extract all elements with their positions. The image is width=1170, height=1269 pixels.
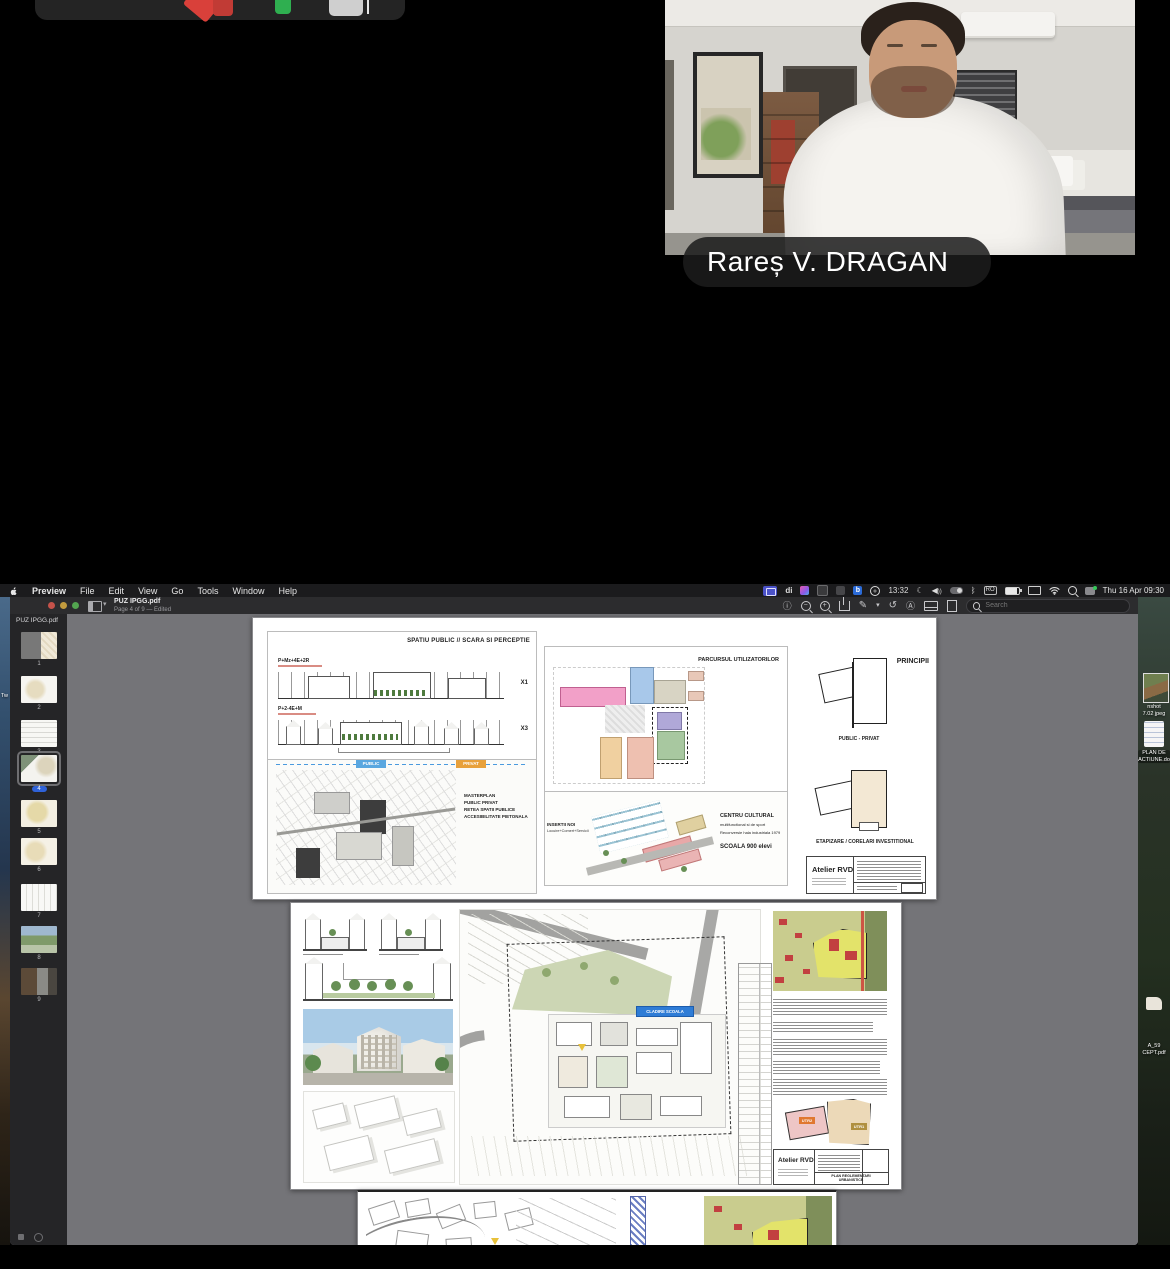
profile-caption bbox=[303, 952, 343, 955]
utr2-chip: UTR2 bbox=[799, 1117, 815, 1124]
axo-box bbox=[384, 1138, 440, 1174]
plaza-hatch bbox=[605, 705, 645, 733]
elev2-dim bbox=[338, 748, 450, 753]
render-windows bbox=[361, 1035, 397, 1069]
page-number-9: 9 bbox=[21, 997, 57, 1003]
panel-scara-title: SPATIU PUBLIC // SCARA SI PERCEPTIE bbox=[407, 638, 530, 644]
profile-house bbox=[433, 963, 451, 1001]
app-colorful-icon[interactable] bbox=[800, 586, 809, 595]
menu-status-area: di b 13:32 ☾ ◀)) ᛒ RO bbox=[763, 585, 1170, 596]
mp-blue-axis bbox=[276, 764, 528, 765]
plan-building bbox=[558, 1056, 588, 1088]
sheet3-blue-hatch bbox=[630, 1196, 646, 1245]
desktop-wallpaper-left: Tw bbox=[0, 597, 10, 1245]
signature-icon[interactable] bbox=[924, 601, 938, 611]
toggle-pill-icon[interactable] bbox=[950, 587, 963, 594]
mp-building bbox=[336, 832, 382, 860]
plan-building bbox=[596, 1056, 628, 1088]
panel-scara: SPATIU PUBLIC // SCARA SI PERCEPTIE P+Mz… bbox=[267, 631, 537, 761]
desktop-doc-label[interactable]: PLAN DEACTIUNE.do bbox=[1138, 750, 1170, 763]
page-number-5: 5 bbox=[21, 829, 57, 835]
page-number-4: 4 bbox=[21, 786, 57, 792]
mp-building bbox=[392, 826, 414, 866]
block-purple bbox=[657, 712, 682, 730]
markup-pencil-icon[interactable]: ✎ bbox=[859, 600, 867, 612]
principii-diagram-1 bbox=[819, 656, 893, 732]
elev2-sub bbox=[278, 713, 316, 715]
block-tan bbox=[654, 680, 686, 704]
titleblock-sheet1: Atelier RVD bbox=[806, 856, 926, 894]
plan-building bbox=[600, 1022, 628, 1046]
zoning-map bbox=[773, 911, 887, 991]
page-thumbnail-8[interactable] bbox=[21, 926, 57, 953]
sheet3-cadastru bbox=[366, 1198, 616, 1245]
mp-building bbox=[314, 792, 350, 814]
bluetooth-icon[interactable]: ᛒ bbox=[971, 586, 976, 595]
profil-stradal-2 bbox=[379, 911, 443, 953]
page-thumbnail-3[interactable] bbox=[21, 720, 57, 747]
person-head bbox=[861, 2, 965, 122]
etapizare-caption: ETAPIZARE / CORELARI INVESTITIONAL bbox=[799, 839, 931, 845]
panel-parcursul: PARCURSUL UTILIZATORILOR bbox=[544, 646, 788, 793]
block-peach bbox=[627, 737, 654, 779]
share-screen-icon[interactable] bbox=[329, 0, 363, 16]
render-tree bbox=[305, 1055, 321, 1071]
titleblock-sheet2: Atelier RVD PLAN REGLEMENTARI URBANISTIC… bbox=[773, 1149, 889, 1185]
menu-view[interactable]: View bbox=[138, 586, 157, 596]
diagram-tag bbox=[859, 822, 879, 831]
thumbnail-sidebar[interactable]: PUZ IPGG.pdf 1 2 3 4 5 6 7 8 9 bbox=[10, 614, 67, 1245]
profile-house bbox=[381, 919, 397, 951]
elev1-trees bbox=[374, 690, 428, 696]
page-thumbnail-6[interactable] bbox=[21, 838, 57, 865]
spotlight-search-icon[interactable] bbox=[1068, 586, 1077, 595]
app-disabled-icon[interactable] bbox=[836, 586, 845, 595]
elev1-sub bbox=[278, 665, 322, 667]
sidebar-toggle-chevron-icon[interactable]: ▾ bbox=[103, 600, 107, 608]
axo-image bbox=[585, 800, 715, 878]
masterplan-drawing bbox=[276, 770, 456, 885]
elev2-trees bbox=[342, 734, 398, 740]
plan-school-chip: CLADIRE SCOALA bbox=[636, 1006, 694, 1017]
diagram-body bbox=[853, 658, 887, 724]
shared-screen: Preview File Edit View Go Tools Window H… bbox=[0, 584, 1170, 1269]
elev2-house bbox=[444, 728, 459, 745]
render-tree bbox=[435, 1057, 449, 1071]
zoom-out-icon[interactable]: − bbox=[801, 601, 811, 611]
panel-masterplan: PUBLIC PRIVAT MASTERPLAN PUBLIC PRIVAT R… bbox=[267, 759, 537, 894]
menu-clock[interactable]: Thu 16 Apr 09:30 bbox=[1103, 586, 1164, 595]
meeting-control-bar bbox=[35, 0, 405, 20]
elev1-label: P+Mz+4E+2R bbox=[278, 658, 309, 664]
pdf-scroll-area[interactable]: SPATIU PUBLIC // SCARA SI PERCEPTIE P+Mz… bbox=[67, 614, 1138, 1245]
sheet3-parcels bbox=[516, 1198, 616, 1245]
mp-building-dark bbox=[296, 848, 320, 878]
page-box-icon[interactable] bbox=[947, 600, 957, 612]
search-input[interactable] bbox=[983, 601, 1123, 610]
profile-caption bbox=[379, 952, 419, 955]
mp-caption-3: RETEA SPATII PUBLICE bbox=[464, 806, 528, 813]
video-on-icon[interactable] bbox=[275, 0, 291, 14]
menu-tools[interactable]: Tools bbox=[197, 586, 218, 596]
atelier-logo: Atelier RVD bbox=[812, 865, 853, 874]
utr-diagram: UTR2 UTR1 bbox=[787, 1099, 883, 1145]
window-titlebar: ▾ PUZ IPGG.pdf Page 4 of 9 — Edited ⓘ − … bbox=[10, 597, 1138, 615]
minimize-window-button[interactable] bbox=[60, 602, 67, 609]
block-orange bbox=[600, 737, 622, 779]
principii-diagram-2 bbox=[813, 768, 897, 832]
centru-sub: Reconversie hala industriala 1979 bbox=[720, 830, 784, 836]
plan-building bbox=[564, 1096, 610, 1118]
diagram-divider bbox=[852, 662, 854, 728]
elev2-drawing bbox=[278, 720, 504, 745]
insertii-sub: Locuire+Comert+Servicii bbox=[547, 828, 591, 834]
plan-marker-yellow bbox=[578, 1044, 586, 1051]
block-blue bbox=[630, 667, 654, 704]
doorway-shadow bbox=[665, 60, 674, 210]
focus-moon-icon[interactable]: ☾ bbox=[916, 586, 923, 595]
page-thumbnail-5[interactable] bbox=[21, 800, 57, 827]
pdf-sheet-2: CLADIRE SCOALA bbox=[290, 902, 902, 1190]
page-thumbnail-4-selected[interactable] bbox=[21, 755, 57, 782]
page-thumbnail-1[interactable] bbox=[21, 632, 57, 659]
pdf-sheet-3 bbox=[357, 1190, 837, 1245]
plan-building bbox=[636, 1028, 678, 1046]
desktop-screenshot-icon[interactable] bbox=[1143, 673, 1169, 703]
window-title: PUZ IPGG.pdf bbox=[114, 598, 171, 606]
elev2-house bbox=[414, 726, 429, 745]
app-dark-icon[interactable] bbox=[817, 585, 828, 596]
menu-window[interactable]: Window bbox=[232, 586, 264, 596]
profile-house bbox=[349, 919, 365, 951]
sheet3-marker bbox=[491, 1238, 499, 1245]
desktop-wallpaper-right: nshot7.02 jpeg PLAN DEACTIUNE.do A_59CEP… bbox=[1138, 597, 1170, 1245]
annotate-a-icon[interactable]: Ⓐ bbox=[906, 600, 915, 612]
titleblock-text bbox=[857, 885, 897, 890]
plan-building bbox=[620, 1094, 652, 1120]
menu-app-name[interactable]: Preview bbox=[32, 586, 66, 596]
bilant-table bbox=[738, 963, 772, 1185]
share-screen-plus bbox=[367, 0, 369, 14]
profile-frame bbox=[343, 963, 394, 980]
sheet3-map bbox=[704, 1196, 832, 1245]
plan-lower-parcels bbox=[468, 1136, 748, 1176]
block-peach-small bbox=[688, 671, 704, 681]
axo-tree bbox=[603, 850, 609, 856]
wifi-icon[interactable] bbox=[1049, 586, 1060, 595]
profile-tree bbox=[405, 929, 412, 936]
pdf-sheet-1: SPATIU PUBLIC // SCARA SI PERCEPTIE P+Mz… bbox=[252, 617, 937, 900]
diagram-body-etapa bbox=[851, 770, 887, 828]
battery-icon[interactable] bbox=[1005, 587, 1020, 595]
profile-tree bbox=[329, 929, 336, 936]
titleblock-lines bbox=[812, 877, 846, 885]
profil-stradal-wide bbox=[303, 959, 453, 1005]
profile-ground bbox=[303, 949, 367, 951]
desktop-doc-icon[interactable] bbox=[1144, 721, 1164, 747]
markup-chevron-icon[interactable]: ▾ bbox=[876, 600, 880, 612]
titleblock-cell bbox=[901, 883, 923, 893]
person-eye-left bbox=[887, 44, 903, 47]
sidebar-doc-label: PUZ IPGG.pdf bbox=[16, 617, 58, 624]
globe-icon[interactable] bbox=[870, 586, 880, 596]
person-beard bbox=[871, 66, 955, 118]
atelier-logo-2: Atelier RVD bbox=[778, 1157, 814, 1164]
elev2-house bbox=[286, 726, 301, 745]
profile-green-strip bbox=[323, 993, 435, 998]
status-world-time[interactable]: 13:32 bbox=[888, 586, 908, 595]
share-icon[interactable] bbox=[839, 601, 850, 611]
status-di[interactable]: di bbox=[785, 586, 792, 595]
desktop-left-icon-label[interactable]: Tw bbox=[1, 693, 8, 700]
public-privat-caption: PUBLIC - PRIVAT bbox=[819, 736, 899, 742]
menu-go[interactable]: Go bbox=[171, 586, 183, 596]
plan-building bbox=[660, 1096, 702, 1116]
menu-file[interactable]: File bbox=[80, 586, 95, 596]
ac-unit bbox=[961, 12, 1055, 38]
mp-caption-4: ACCESIBILITATE PIETONALA bbox=[464, 813, 528, 820]
axo-hala bbox=[676, 814, 707, 835]
person-eye-right bbox=[921, 44, 937, 47]
sidebar-bottom-circle-icon[interactable] bbox=[34, 1233, 43, 1242]
plan-building bbox=[556, 1022, 592, 1046]
map-road-red bbox=[861, 911, 864, 991]
sidebar-bottom-icon[interactable] bbox=[18, 1234, 24, 1240]
profile-house bbox=[305, 919, 321, 951]
block-pink bbox=[560, 687, 626, 707]
participant-video-tile bbox=[665, 0, 1135, 255]
page-number-2: 2 bbox=[21, 705, 57, 711]
parcursul-title: PARCURSUL UTILIZATORILOR bbox=[698, 657, 779, 663]
centru-rest: multifunctional si de sport bbox=[720, 822, 765, 827]
search-magnifier-icon bbox=[973, 602, 980, 610]
desktop-pdf-label[interactable]: A_59CEPT.pdf bbox=[1138, 1043, 1170, 1056]
plan-title-line2: URBANISTICE bbox=[818, 1178, 884, 1182]
axo-box bbox=[402, 1108, 442, 1136]
rotate-icon[interactable]: ↺ bbox=[889, 600, 897, 612]
sidebar-toggle-icon[interactable] bbox=[88, 601, 102, 612]
axo-tree bbox=[681, 866, 687, 872]
input-source-badge[interactable]: RO bbox=[984, 586, 997, 595]
elev1-block bbox=[308, 676, 350, 699]
zoom-window-button[interactable] bbox=[72, 602, 79, 609]
info-icon[interactable]: ⓘ bbox=[783, 600, 792, 612]
elev1-mark: X1 bbox=[521, 680, 528, 686]
utr1-shape bbox=[827, 1099, 871, 1145]
render-image bbox=[303, 1009, 453, 1085]
presenting-indicator-icon[interactable] bbox=[763, 586, 777, 596]
display-mirroring-icon[interactable] bbox=[1028, 586, 1041, 595]
poster-art bbox=[701, 108, 751, 160]
chip-privat: PRIVAT bbox=[456, 760, 486, 768]
page-number-6: 6 bbox=[21, 867, 57, 873]
axo-tree bbox=[621, 858, 627, 864]
utr1-chip: UTR1 bbox=[851, 1123, 867, 1130]
elev2-label: P+2-4E+M bbox=[278, 706, 302, 712]
elev2-house bbox=[474, 728, 489, 745]
close-window-button[interactable] bbox=[48, 602, 55, 609]
plan-building bbox=[680, 1022, 712, 1074]
page-number-7: 7 bbox=[21, 913, 57, 919]
menu-help[interactable]: Help bbox=[278, 586, 297, 596]
app-b-icon[interactable]: b bbox=[853, 586, 862, 595]
apple-logo-icon[interactable] bbox=[10, 586, 18, 595]
centru-title: CENTRU CULTURAL bbox=[720, 813, 774, 819]
axo-white-model bbox=[303, 1091, 455, 1183]
page-number-8: 8 bbox=[21, 955, 57, 961]
zoom-in-icon[interactable]: + bbox=[820, 601, 830, 611]
elev1-drawing bbox=[278, 672, 504, 699]
plan-building bbox=[636, 1052, 672, 1074]
regulament-text bbox=[773, 999, 887, 1095]
render-plaza bbox=[303, 1073, 453, 1085]
desktop-pdf-icon[interactable] bbox=[1146, 997, 1162, 1010]
profile-house bbox=[425, 919, 441, 951]
preview-window: ▾ PUZ IPGG.pdf Page 4 of 9 — Edited ⓘ − … bbox=[10, 597, 1138, 1245]
titleblock-divider bbox=[853, 857, 854, 893]
person-mouth bbox=[901, 86, 927, 92]
block-green bbox=[657, 731, 685, 760]
scoala-label: SCOALA 900 elevi bbox=[720, 844, 784, 850]
mp-caption-1: MASTERPLAN bbox=[464, 792, 528, 799]
menu-left: Preview File Edit View Go Tools Window H… bbox=[0, 586, 297, 596]
titleblock-text bbox=[857, 860, 921, 880]
poster-frame-left bbox=[693, 52, 763, 178]
chip-public: PUBLIC bbox=[356, 760, 386, 768]
window-subtitle: Page 4 of 9 — Edited bbox=[114, 606, 171, 614]
map-forest-band bbox=[865, 911, 887, 991]
page-thumbnail-9[interactable] bbox=[21, 968, 57, 995]
panel-axo: INSERTII NOI Locuire+Comert+Servicii CEN… bbox=[544, 791, 788, 886]
page-number-1: 1 bbox=[21, 661, 57, 667]
user-session-icon[interactable] bbox=[1085, 587, 1095, 595]
profil-stradal-1 bbox=[303, 911, 367, 953]
page-thumbnail-7[interactable] bbox=[21, 884, 57, 911]
macos-menu-bar: Preview File Edit View Go Tools Window H… bbox=[0, 584, 1170, 597]
axo-box bbox=[324, 1135, 375, 1171]
menu-edit[interactable]: Edit bbox=[109, 586, 125, 596]
participant-name-label: Rareș V. DRAGAN bbox=[683, 237, 991, 287]
block-peach-small bbox=[688, 691, 704, 701]
map-puz-zone bbox=[813, 929, 867, 979]
profile-ground bbox=[379, 949, 443, 951]
search-field[interactable] bbox=[966, 599, 1130, 613]
profile-ground bbox=[303, 999, 453, 1001]
page-thumbnail-2[interactable] bbox=[21, 676, 57, 703]
profile-house bbox=[305, 963, 323, 1001]
elev2-mark: X3 bbox=[521, 726, 528, 732]
elev1-block bbox=[448, 678, 486, 699]
axo-box bbox=[354, 1095, 401, 1128]
volume-icon[interactable]: ◀)) bbox=[932, 586, 942, 595]
elev2-house bbox=[318, 728, 333, 745]
mp-caption-2: PUBLIC PRIVAT bbox=[464, 799, 528, 806]
site-plan: CLADIRE SCOALA bbox=[459, 909, 761, 1185]
desktop-screenshot-label[interactable]: nshot7.02 jpeg bbox=[1138, 704, 1170, 717]
mic-muted-slash bbox=[213, 0, 233, 16]
axo-box bbox=[312, 1102, 348, 1129]
